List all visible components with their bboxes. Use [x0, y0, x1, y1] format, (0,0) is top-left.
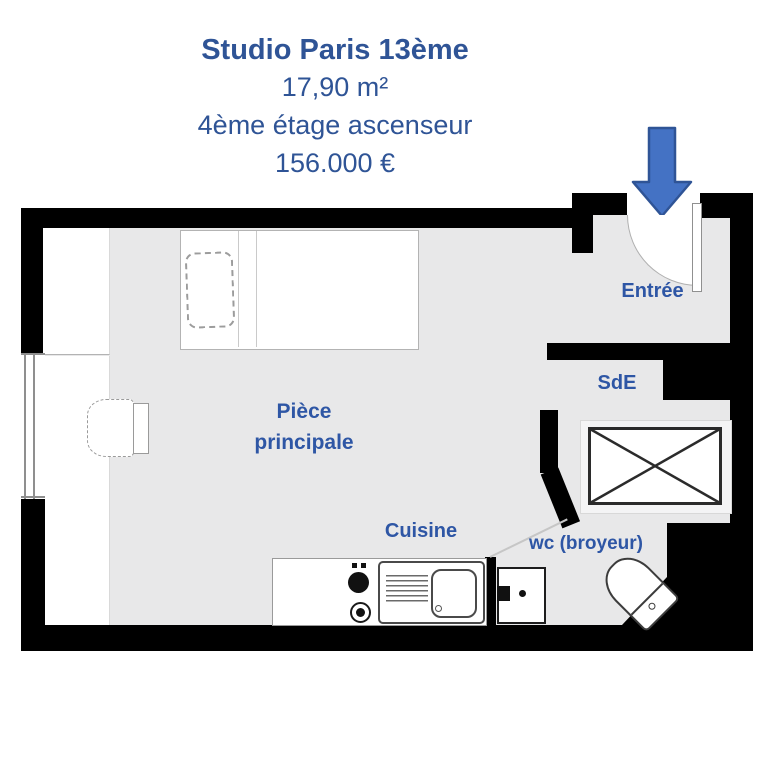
window-frame-line [33, 353, 35, 499]
wall-top [21, 208, 572, 228]
sink-drain [435, 605, 442, 612]
bed-fold-line [238, 231, 239, 347]
wall-sde-block [663, 357, 732, 400]
window-sill [21, 353, 45, 355]
washbasin-drain [519, 590, 526, 597]
floorplan-page: Studio Paris 13ème 17,90 m² 4ème étage a… [0, 0, 768, 768]
window-sill [21, 496, 45, 498]
shower-tray [588, 427, 722, 505]
wall-left-upper [21, 208, 43, 355]
wardrobe [43, 228, 110, 355]
room-label-main: Pièce principale [229, 396, 379, 458]
desk [43, 356, 110, 625]
wall-door-pier [700, 193, 753, 218]
wall-entry-top [572, 193, 627, 215]
pillow [185, 251, 236, 329]
wall-left-lower [21, 497, 45, 651]
stove-burner-core [356, 608, 365, 617]
window-frame-line [24, 353, 26, 499]
room-label-sde: SdE [577, 370, 657, 397]
chair-backrest [133, 403, 149, 454]
bed-fold-line [256, 231, 257, 347]
wall-right-column [730, 218, 753, 523]
room-label-wc: wc (broyeur) [491, 531, 681, 557]
toilet-seat-line [631, 583, 664, 616]
stove-burner-large [348, 572, 369, 593]
page-title: Studio Paris 13ème [40, 32, 630, 68]
chair [87, 399, 135, 457]
listing-area: 17,90 m² [40, 68, 630, 106]
room-label-cuisine: Cuisine [361, 518, 481, 545]
wall-sde-left [540, 410, 558, 473]
stove-burner-small [350, 602, 371, 623]
listing-floor: 4ème étage ascenseur [40, 106, 630, 144]
listing-header: Studio Paris 13ème 17,90 m² 4ème étage a… [40, 32, 630, 182]
sink-drainboard [386, 575, 428, 605]
stove-knob [361, 563, 366, 568]
entrance-arrow-icon [630, 126, 694, 220]
room-label-entree: Entrée [600, 278, 705, 305]
listing-price: 156.000 € [40, 144, 630, 182]
stove-knob [352, 563, 357, 568]
washbasin-tap [497, 586, 510, 601]
